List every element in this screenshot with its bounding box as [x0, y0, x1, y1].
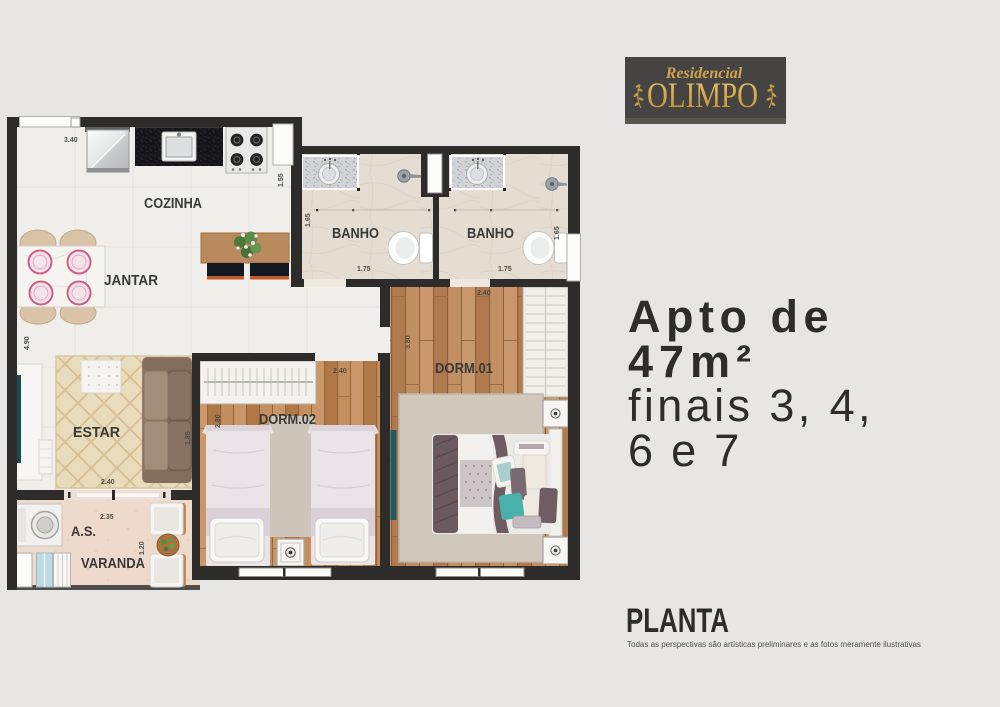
svg-text:3.80: 3.80 [405, 335, 412, 349]
svg-text:BANHO: BANHO [467, 226, 514, 242]
svg-text:3.40: 3.40 [64, 137, 78, 144]
svg-text:2.40: 2.40 [101, 479, 115, 486]
svg-text:1.65: 1.65 [305, 213, 312, 227]
svg-text:ESTAR: ESTAR [73, 425, 121, 441]
svg-text:VARANDA: VARANDA [81, 556, 145, 572]
svg-text:6 e 7: 6 e 7 [628, 425, 742, 476]
svg-text:BANHO: BANHO [332, 226, 379, 242]
svg-text:1.85: 1.85 [185, 431, 192, 445]
svg-text:2.40: 2.40 [333, 368, 347, 375]
svg-text:1.55: 1.55 [278, 173, 285, 187]
svg-text:COZINHA: COZINHA [144, 196, 202, 212]
svg-text:DORM.02: DORM.02 [259, 412, 316, 428]
svg-text:2.80: 2.80 [215, 414, 222, 428]
svg-text:JANTAR: JANTAR [104, 273, 158, 289]
svg-text:Todas as perspectivas são artí: Todas as perspectivas são artísticas pre… [627, 640, 921, 649]
svg-text:DORM.01: DORM.01 [435, 361, 493, 377]
svg-text:OLIMPO: OLIMPO [647, 75, 758, 115]
svg-text:finais 3, 4,: finais 3, 4, [628, 380, 874, 431]
svg-text:PLANTA: PLANTA [626, 602, 729, 640]
svg-text:Apto de: Apto de [628, 291, 834, 342]
svg-text:4.90: 4.90 [24, 336, 31, 350]
svg-text:A.S.: A.S. [71, 524, 96, 539]
svg-text:1.20: 1.20 [139, 541, 146, 555]
svg-text:1.65: 1.65 [554, 226, 561, 240]
svg-text:2.35: 2.35 [100, 514, 114, 521]
svg-text:1.75: 1.75 [357, 266, 371, 273]
svg-text:2.40: 2.40 [477, 290, 491, 297]
svg-text:1.75: 1.75 [498, 266, 512, 273]
